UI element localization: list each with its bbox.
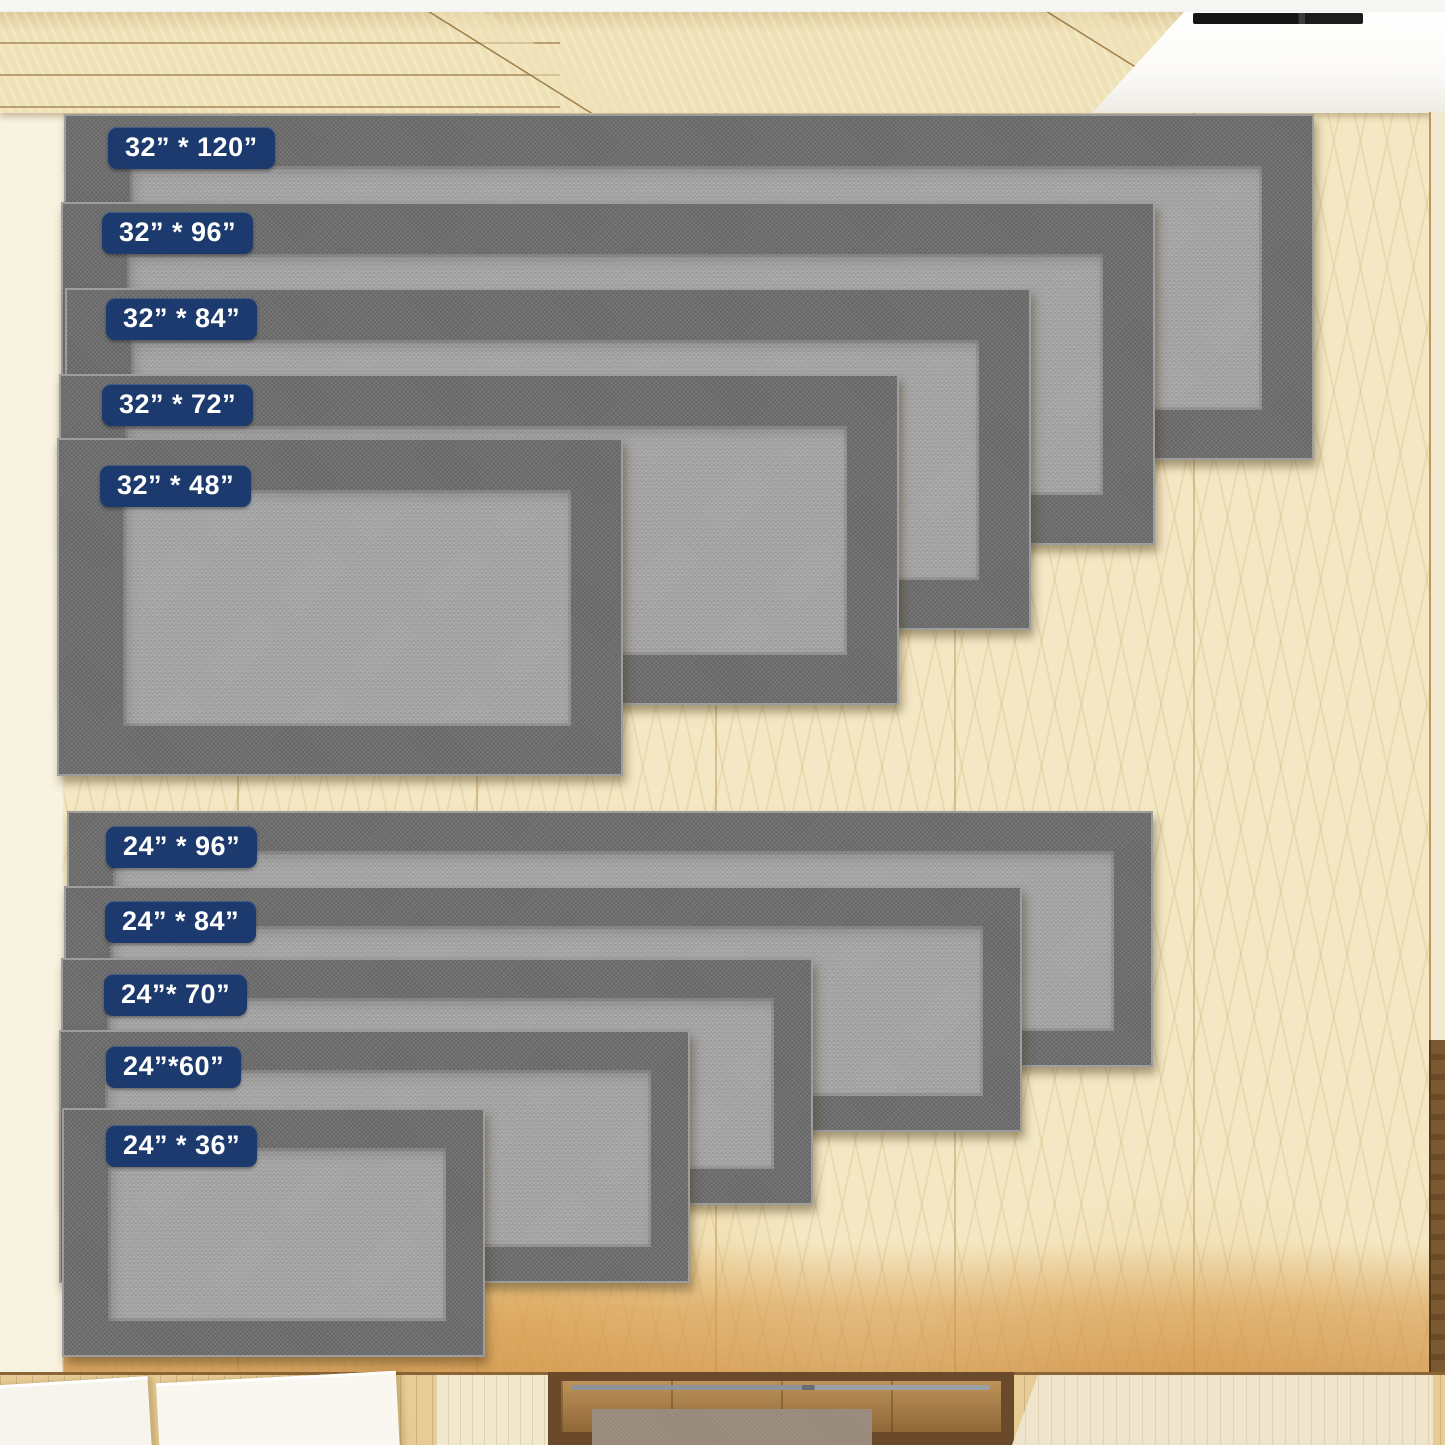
- appliance-vent: [1193, 13, 1363, 24]
- rug-field: [123, 490, 571, 726]
- wood-platform: [436, 1375, 552, 1445]
- wood-platform: [1012, 1375, 1433, 1445]
- white-step-slab: [156, 1371, 400, 1445]
- size-badge-32x96: 32” * 96”: [102, 212, 253, 254]
- size-badge-24x36: 24” * 36”: [106, 1125, 257, 1167]
- size-badge-24x96: 24” * 96”: [106, 826, 257, 868]
- white-step-slab: [0, 1376, 152, 1445]
- right-wall-strip: [1429, 112, 1445, 1040]
- door-track: [572, 1385, 990, 1390]
- size-badge-32x84: 32” * 84”: [106, 298, 257, 340]
- size-badge-24x60: 24”*60”: [106, 1046, 241, 1088]
- size-badge-32x72: 32” * 72”: [102, 384, 253, 426]
- rug-field: [108, 1148, 446, 1321]
- doormat: [592, 1409, 872, 1445]
- size-badge-32x120: 32” * 120”: [108, 127, 275, 169]
- size-badge-24x70: 24”* 70”: [104, 974, 247, 1016]
- size-badge-24x84: 24” * 84”: [105, 901, 256, 943]
- product-size-chart-scene: 32” * 120” 32” * 96” 32” * 84” 32” * 72”…: [0, 0, 1445, 1445]
- size-badge-32x48: 32” * 48”: [100, 465, 251, 507]
